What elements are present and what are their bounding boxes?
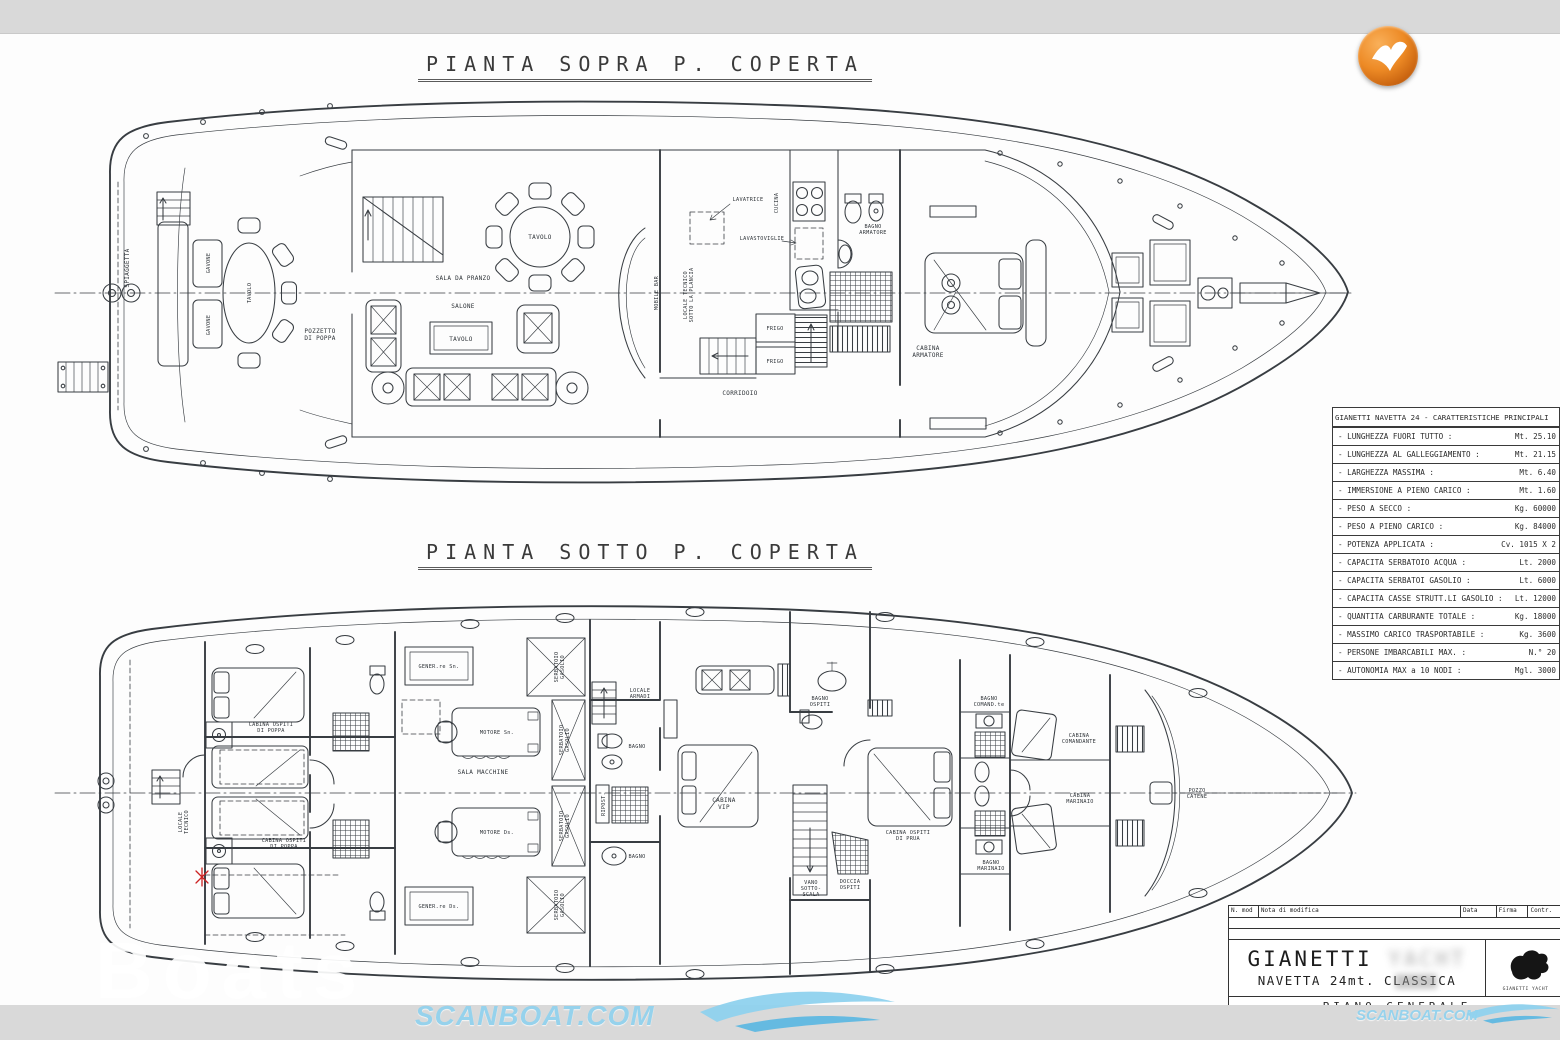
spec-row: - LARGHEZZA MASSIMA : Mt. 6.40 (1333, 464, 1559, 482)
guest-bath-stairs (790, 612, 870, 972)
upper-deck-plan: SPIAGGETTA GAVONE GAVONE TAVOLO POZZETTO… (55, 102, 1352, 483)
spec-row: - PESO A PIENO CARICO : Kg. 84000 (1333, 518, 1559, 536)
locale-tecnico-plancia-label: LOCALE TECNICOSOTTO LA PLANCIA (683, 267, 695, 322)
serbatoio-label-1: SERBATOIOGASOLIO (554, 652, 566, 683)
bagno-marinaio-label: BAGNOMARINAIO (977, 860, 1004, 872)
cabina-vip-label: CABINAVIP (712, 797, 736, 811)
galley-sink (795, 265, 826, 310)
spec-value: Kg. 84000 (1515, 522, 1556, 531)
spec-label: - LARGHEZZA MASSIMA : (1338, 468, 1434, 477)
spec-row: - MASSIMO CARICO TRASPORTABILE : Kg. 360… (1333, 626, 1559, 644)
bird-icon (1358, 26, 1418, 86)
cockpit-table-label: TAVOLO (247, 283, 253, 304)
spec-row: - CAPACITA SERBATOI GASOLIO : Lt. 6000 (1333, 572, 1559, 590)
maker-name: GIANETTI YACHT (1229, 947, 1485, 971)
boats-ghost-watermark: Boats (95, 925, 367, 1017)
blur-patch (1395, 974, 1437, 989)
flybridge-stairs (363, 197, 443, 262)
spec-value: Lt. 12000 (1515, 594, 1556, 603)
spec-value: Lt. 6000 (1519, 576, 1556, 585)
stairs-down (700, 338, 756, 374)
spec-label: - QUANTITA CARBURANTE TOTALE : (1338, 612, 1475, 621)
spec-label: - IMMERSIONE A PIENO CARICO : (1338, 486, 1471, 495)
stern-fairleads (103, 284, 140, 302)
lavastoviglie-label: LAVASTOVIGLIE (740, 236, 785, 242)
spec-value: Lt. 2000 (1519, 558, 1556, 567)
stern-railing-dots (144, 104, 333, 482)
lower-plan-title: PIANTA SOTTO P. COPERTA (418, 540, 872, 570)
upper-deck-inner-line (124, 116, 1326, 469)
mobile-bar (619, 228, 645, 378)
model-name: NAVETTA 24mt. CLASSICA (1229, 973, 1485, 988)
stamp-cell: GIANETTI YACHT (1486, 940, 1560, 996)
cleat (324, 136, 347, 150)
wave-swoosh-icon (695, 980, 905, 1040)
spec-label: - AUTONOMIA MAX a 10 NODI : (1338, 666, 1461, 675)
gavone-label-1: GAVONE (206, 253, 212, 274)
spec-value: Kg. 60000 (1515, 504, 1556, 513)
spec-row: - PERSONE IMBARCABILI MAX. : N.° 20 (1333, 644, 1559, 662)
spec-row: - AUTONOMIA MAX a 10 NODI : Mgl. 3000 (1333, 662, 1559, 679)
spec-row: - POTENZA APPLICATA : Cv. 1015 X 2 (1333, 536, 1559, 554)
bagno-label-1: BAGNO (628, 744, 645, 750)
lavatrice-arrow (710, 204, 730, 220)
cucina-label: CUCINA (774, 192, 780, 213)
cabina-ospiti-poppa-label-1: CABINA OSPITIDI POPPA (249, 722, 294, 734)
gener-ds-label: GENER.re Ds. (418, 904, 459, 910)
stamp-caption: GIANETTI YACHT (1486, 987, 1560, 992)
coffee-table-label: TAVOLO (449, 336, 473, 343)
spec-value: Kg. 18000 (1515, 612, 1556, 621)
title-block-header: N. mod Nota di modifica Data Firma Contr… (1229, 906, 1560, 918)
top-band (0, 0, 1560, 34)
spec-table-header: GIANETTI NAVETTA 24 - CARATTERISTICHE PR… (1333, 408, 1559, 428)
lavatrice-label: LAVATRICE (733, 197, 764, 203)
boat-title-cell: GIANETTI YACHT NAVETTA 24mt. CLASSICA (1229, 940, 1486, 996)
spec-label: - CAPACITA CASSE STRUTT.LI GASOLIO : (1338, 594, 1503, 603)
pozzetto-label: POZZETTODI POPPA (304, 328, 335, 342)
col-firma: Firma (1497, 906, 1529, 917)
spec-row: - CAPACITA SERBATOIO ACQUA : Lt. 2000 (1333, 554, 1559, 572)
col-data: Data (1461, 906, 1497, 917)
spec-label: - CAPACITA SERBATOI GASOLIO : (1338, 576, 1471, 585)
bagno-comandante-label: BAGNOCOMAND.te (974, 696, 1005, 708)
aft-sofa (372, 368, 588, 406)
col-nota: Nota di modifica (1259, 906, 1461, 917)
spec-value: Kg. 3600 (1519, 630, 1556, 639)
spec-row: - LUNGHEZZA FUORI TUTTO : Mt. 25.10 (1333, 428, 1559, 446)
sala-da-pranzo-label: SALA DA PRANZO (436, 275, 491, 282)
corridoio-label: CORRIDOIO (722, 390, 757, 397)
spec-table-rows: - LUNGHEZZA FUORI TUTTO : Mt. 25.10 - LU… (1333, 428, 1559, 679)
spec-label: - CAPACITA SERBATOIO ACQUA : (1338, 558, 1466, 567)
spec-row: - LUNGHEZZA AL GALLEGGIAMENTO : Mt. 21.1… (1333, 446, 1559, 464)
spec-value: Mt. 6.40 (1519, 468, 1556, 477)
spec-label: - PERSONE IMBARCABILI MAX. : (1338, 648, 1466, 657)
sala-macchine-label: SALA MACCHINE (458, 769, 509, 776)
side-sofa (366, 300, 401, 372)
spec-label: - PESO A PIENO CARICO : (1338, 522, 1443, 531)
scanboat-watermark: SCANBOAT.COM (415, 1000, 655, 1032)
locale-tecnico-label: LOCALETECNICO (178, 810, 190, 834)
spec-label: - LUNGHEZZA FUORI TUTTO : (1338, 432, 1452, 441)
upper-hull-outline (110, 102, 1348, 483)
wave-swoosh-icon-small (1464, 998, 1560, 1028)
frigo-label-1: FRIGO (766, 326, 783, 332)
fore-guest-cabin (868, 700, 952, 826)
lower-deck-plan: LOCALETECNICO CABINA OSPITIDI POPPA (55, 606, 1356, 980)
washing-machine (690, 212, 724, 244)
revision-row (1229, 929, 1560, 940)
motore-ds-label: MOTORE Ds. (480, 830, 514, 836)
col-contr: Contr. (1528, 906, 1560, 917)
spec-value: Mt. 21.15 (1515, 450, 1556, 459)
spec-row: - QUANTITA CARBURANTE TOTALE : Kg. 18000 (1333, 608, 1559, 626)
title-block-main: GIANETTI YACHT NAVETTA 24mt. CLASSICA GI… (1229, 940, 1560, 997)
owner-bathroom (830, 194, 892, 352)
upper-plan-title: PIANTA SOPRA P. COPERTA (418, 52, 872, 82)
serbatoio-label-4: SERBATOIOGASOLIO (554, 890, 566, 921)
armchair (517, 305, 559, 353)
cabina-comandante-label: CABINACOMANDANTE (1062, 733, 1096, 745)
stern-steps (157, 192, 190, 225)
drawing-sheet: PIANTA SOPRA P. COPERTA PIANTA SOTTO P. … (0, 0, 1560, 1040)
stove (793, 182, 825, 221)
dishwasher (795, 228, 823, 259)
vano-scala-label: VANOSOTTO-SCALA (801, 880, 822, 898)
windshield-inner (985, 161, 1109, 426)
col-n-mod: N. mod (1229, 906, 1259, 917)
spec-table: GIANETTI NAVETTA 24 - CARATTERISTICHE PR… (1332, 407, 1560, 680)
spec-value: Mgl. 3000 (1515, 666, 1556, 675)
spec-label: - PESO A SECCO : (1338, 504, 1411, 513)
cabina-marinaio-label: CABINAMARINAIO (1066, 793, 1093, 805)
spec-label: - POTENZA APPLICATA : (1338, 540, 1434, 549)
maker-text: GIANETTI (1247, 947, 1372, 971)
maker-suffix-blurred: YACHT (1388, 947, 1466, 971)
spec-row: - IMMERSIONE A PIENO CARICO : Mt. 1.60 (1333, 482, 1559, 500)
deck-plans-drawing: SPIAGGETTA GAVONE GAVONE TAVOLO POZZETTO… (0, 0, 1560, 1040)
cleat (324, 435, 347, 449)
locale-armadi-label: LOCALEARMADI (630, 688, 651, 700)
bagno-ospiti-label: BAGNOOSPITI (810, 696, 831, 708)
revision-row (1229, 918, 1560, 929)
spec-row: - CAPACITA CASSE STRUTT.LI GASOLIO : Lt.… (1333, 590, 1559, 608)
spec-label: - MASSIMO CARICO TRASPORTABILE : (1338, 630, 1484, 639)
scanboat-logo[interactable] (1358, 26, 1418, 86)
spec-value: Mt. 1.60 (1519, 486, 1556, 495)
transom-seat (158, 222, 188, 366)
pozzo-catene-label: POZZOCATENE (1187, 788, 1208, 800)
spec-label: - LUNGHEZZA AL GALLEGGIAMENTO : (1338, 450, 1480, 459)
motore-sn-label: MOTORE Sn. (480, 730, 514, 736)
fridges (756, 314, 795, 374)
gener-sn-label: GENER.re Sn. (418, 664, 459, 670)
doccia-ospiti-label: DOCCIAOSPITI (840, 879, 861, 891)
bagno-label-2: BAGNO (628, 854, 645, 860)
salone-label: SALONE (451, 303, 475, 310)
spec-value: N.° 20 (1529, 648, 1556, 657)
builder-stamp-icon (1498, 946, 1554, 984)
ripost-label: RIPOST. (601, 792, 607, 816)
spec-row: - PESO A SECCO : Kg. 60000 (1333, 500, 1559, 518)
red-reference-mark (196, 868, 208, 886)
serbatoio-label-2: SERBATOIOGASOLIO (559, 725, 571, 756)
swim-platform (58, 362, 108, 392)
scanboat-watermark-small: SCANBOAT.COM (1356, 1007, 1478, 1024)
gavone-label-2: GAVONE (206, 315, 212, 336)
transom-line (178, 168, 186, 422)
spec-value: Cv. 1015 X 2 (1501, 540, 1556, 549)
spiaggetta-label: SPIAGGETTA (124, 248, 131, 287)
spec-value: Mt. 25.10 (1515, 432, 1556, 441)
cabina-armatore-label: CABINAARMATORE (912, 345, 943, 359)
owner-cabin (925, 206, 1023, 429)
serbatoio-label-3: SERBATOIOGASOLIO (559, 811, 571, 842)
bagno-armatore-label: BAGNOARMATORE (859, 224, 886, 236)
dining-table-label: TAVOLO (528, 234, 552, 241)
frigo-label-2: FRIGO (766, 359, 783, 365)
cabina-ospiti-prua-label: CABINA OSPITIDI PRUA (886, 830, 931, 842)
